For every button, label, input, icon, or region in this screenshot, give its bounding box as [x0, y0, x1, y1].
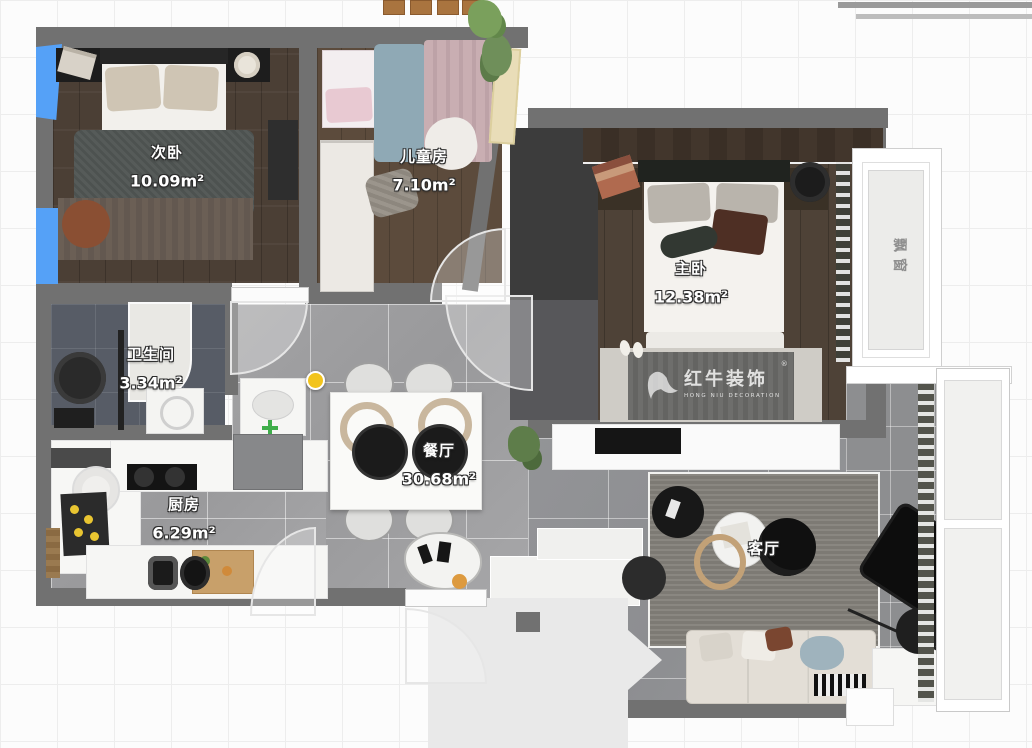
watermark-subtitle: HONG NIU DECORATION	[684, 393, 781, 399]
lemon	[70, 505, 79, 514]
bull-logo-icon	[644, 365, 678, 399]
room-area: 30.68m²	[402, 470, 476, 489]
cooker[interactable]	[180, 556, 210, 590]
bed-headboard[interactable]	[638, 160, 790, 182]
vanity-basin	[252, 390, 294, 420]
range-hood[interactable]	[51, 448, 111, 468]
wall-mid-left	[36, 283, 232, 304]
pillow	[698, 632, 733, 662]
tv-panel[interactable]	[268, 120, 298, 200]
room-name: 次卧	[130, 142, 204, 163]
entry-door-leaf[interactable]	[405, 589, 487, 607]
window-pane	[944, 380, 1002, 520]
yellow-dot-marker[interactable]	[306, 371, 325, 390]
pillow[interactable]	[647, 182, 711, 223]
shelf-box	[410, 0, 432, 15]
room-area: 12.38m²	[654, 288, 728, 307]
wardrobe[interactable]	[320, 140, 374, 292]
entry-platform	[537, 528, 643, 560]
cushion[interactable]	[709, 208, 768, 255]
room-label-master-bedroom: 主卧 12.38m²	[654, 258, 728, 307]
curtain[interactable]	[918, 384, 934, 702]
room-name: 儿童房	[392, 146, 455, 167]
green-plus-marker[interactable]	[262, 426, 278, 430]
burner	[165, 467, 185, 487]
basin[interactable]	[54, 352, 106, 404]
room-label-second-bedroom: 次卧 10.09m²	[130, 142, 204, 191]
pot[interactable]	[148, 556, 178, 590]
wood-slats	[46, 528, 60, 578]
cabinet	[846, 688, 894, 726]
basket-ring[interactable]	[694, 534, 746, 590]
room-label-dining: 餐厅 30.68m²	[402, 440, 476, 489]
appliance[interactable]	[233, 434, 303, 490]
watermark-registered: ®	[781, 360, 788, 368]
window-pane	[944, 528, 1002, 700]
room-label-living: 客厅	[748, 538, 780, 559]
exterior-wall-line-2	[856, 14, 1032, 19]
plant	[468, 0, 502, 38]
lemon	[84, 515, 93, 524]
bath-mat	[54, 408, 94, 428]
plant[interactable]	[482, 34, 512, 76]
throw-blanket	[800, 636, 844, 670]
wall-master-top	[528, 108, 888, 128]
table-lamp[interactable]	[234, 52, 260, 78]
room-label-bathroom: 卫生间 3.34m²	[119, 344, 182, 393]
watermark-brand: 红牛装饰	[684, 365, 781, 391]
washer-drum	[160, 396, 194, 430]
room-area: 3.34m²	[119, 374, 182, 393]
room-name: 主卧	[654, 258, 728, 279]
pillow[interactable]	[105, 64, 162, 112]
plate[interactable]	[352, 424, 408, 480]
shelf-box	[383, 0, 405, 15]
lemon	[90, 532, 99, 541]
room-label-kids-room: 儿童房 7.10m²	[392, 146, 455, 195]
wall-stub-entry	[516, 612, 540, 632]
exterior-wall-line-1	[838, 2, 1032, 8]
shelf-box	[437, 0, 459, 15]
tv[interactable]	[595, 428, 681, 454]
stool[interactable]	[622, 556, 666, 600]
floorplan-canvas: 飘窗	[0, 0, 1032, 748]
pillow[interactable]	[325, 87, 373, 123]
watermark: 红牛装饰 HONG NIU DECORATION ®	[644, 360, 794, 404]
room-label-kitchen: 厨房 6.29m²	[152, 494, 215, 543]
window-highlight-2[interactable]	[36, 208, 58, 284]
bed-headboard[interactable]	[100, 48, 228, 64]
room-name: 厨房	[152, 494, 215, 515]
room-area: 6.29m²	[152, 524, 215, 543]
wall-bedroom-divider	[299, 44, 317, 290]
room-name: 餐厅	[402, 440, 476, 461]
room-area: 10.09m²	[130, 172, 204, 191]
lemon	[74, 528, 83, 537]
vegetable	[222, 566, 232, 576]
bay-window-label: 飘窗	[890, 238, 910, 278]
pillow[interactable]	[163, 65, 219, 112]
plant[interactable]	[508, 426, 540, 462]
rug-circle	[62, 200, 110, 248]
room-area: 7.10m²	[392, 176, 455, 195]
room-name: 客厅	[748, 538, 780, 559]
table-lamp[interactable]	[790, 162, 830, 202]
pillow	[764, 626, 793, 652]
burner	[134, 467, 154, 487]
curtain[interactable]	[836, 162, 850, 362]
wall-left-bath	[36, 295, 51, 435]
room-name: 卫生间	[119, 344, 182, 365]
side-table-black[interactable]	[652, 486, 704, 538]
ball[interactable]	[452, 574, 467, 589]
wall-entry-left	[326, 588, 406, 606]
kids-bed-blue-blanket[interactable]	[374, 44, 426, 162]
